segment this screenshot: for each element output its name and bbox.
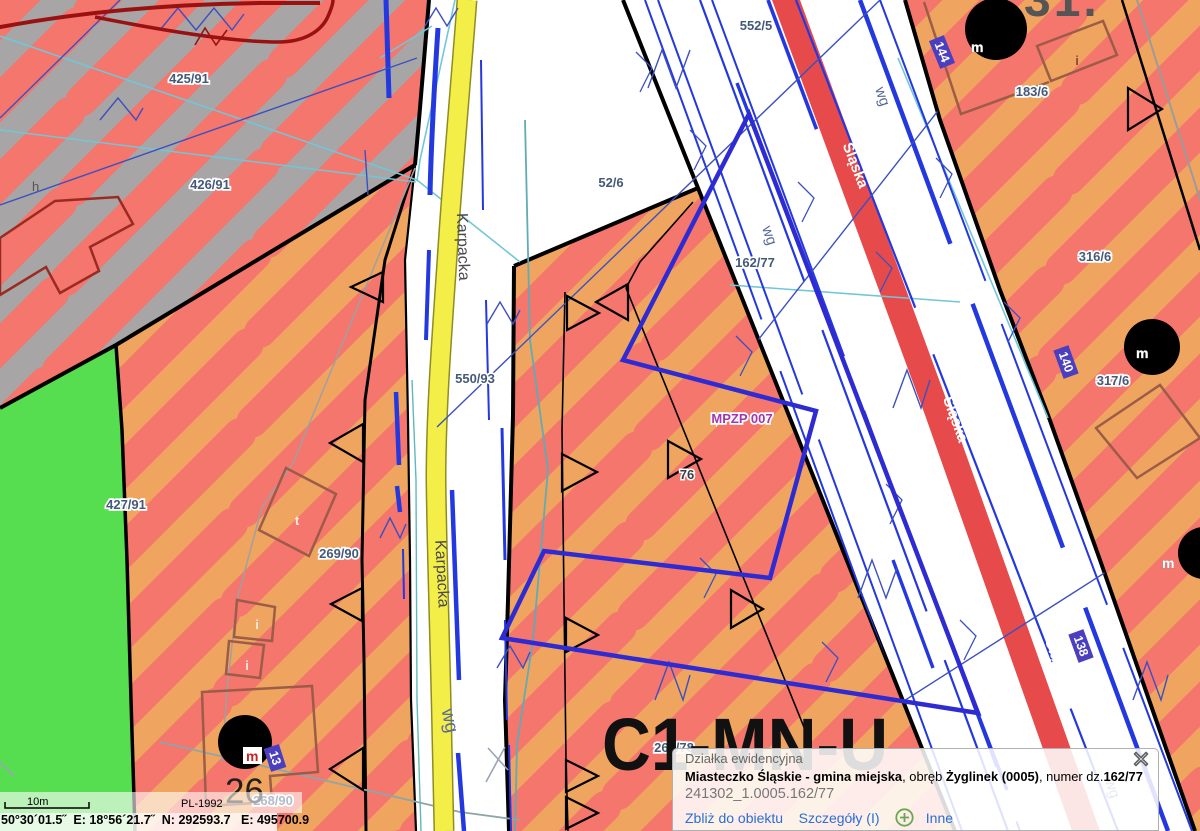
- svg-text:269/90: 269/90: [319, 546, 359, 561]
- svg-text:76: 76: [680, 467, 694, 482]
- svg-text:i: i: [245, 658, 249, 673]
- svg-text:i: i: [1075, 53, 1079, 68]
- svg-text:317/6: 317/6: [1097, 373, 1130, 388]
- svg-text:h: h: [32, 179, 39, 194]
- svg-text:m: m: [971, 39, 983, 55]
- svg-text:10m: 10m: [27, 796, 48, 808]
- svg-text:m: m: [1136, 345, 1148, 361]
- svg-text:Karpacka: Karpacka: [453, 213, 472, 281]
- svg-text:552/5: 552/5: [740, 18, 773, 33]
- svg-text:m: m: [1162, 555, 1174, 571]
- svg-text:426/91: 426/91: [190, 177, 230, 192]
- svg-text:PL-1992: PL-1992: [181, 798, 223, 810]
- svg-text:Karpacka: Karpacka: [431, 540, 452, 608]
- svg-text:m: m: [246, 748, 258, 764]
- svg-text:wg: wg: [871, 84, 893, 108]
- svg-text:MPZP 007: MPZP 007: [711, 411, 772, 426]
- svg-text:183/6: 183/6: [1016, 84, 1049, 99]
- svg-text:52/6: 52/6: [598, 175, 623, 190]
- svg-text:162/77: 162/77: [735, 255, 775, 270]
- svg-text:i: i: [255, 617, 259, 632]
- svg-text:wg: wg: [758, 223, 780, 247]
- svg-text:427/91: 427/91: [106, 497, 146, 512]
- svg-text:316/6: 316/6: [1079, 249, 1112, 264]
- svg-text:46: 46: [921, 450, 939, 468]
- svg-text:31.: 31.: [1024, 0, 1100, 27]
- svg-text:550/93: 550/93: [455, 371, 495, 386]
- svg-text:425/91: 425/91: [169, 71, 209, 86]
- svg-text:t: t: [295, 513, 300, 528]
